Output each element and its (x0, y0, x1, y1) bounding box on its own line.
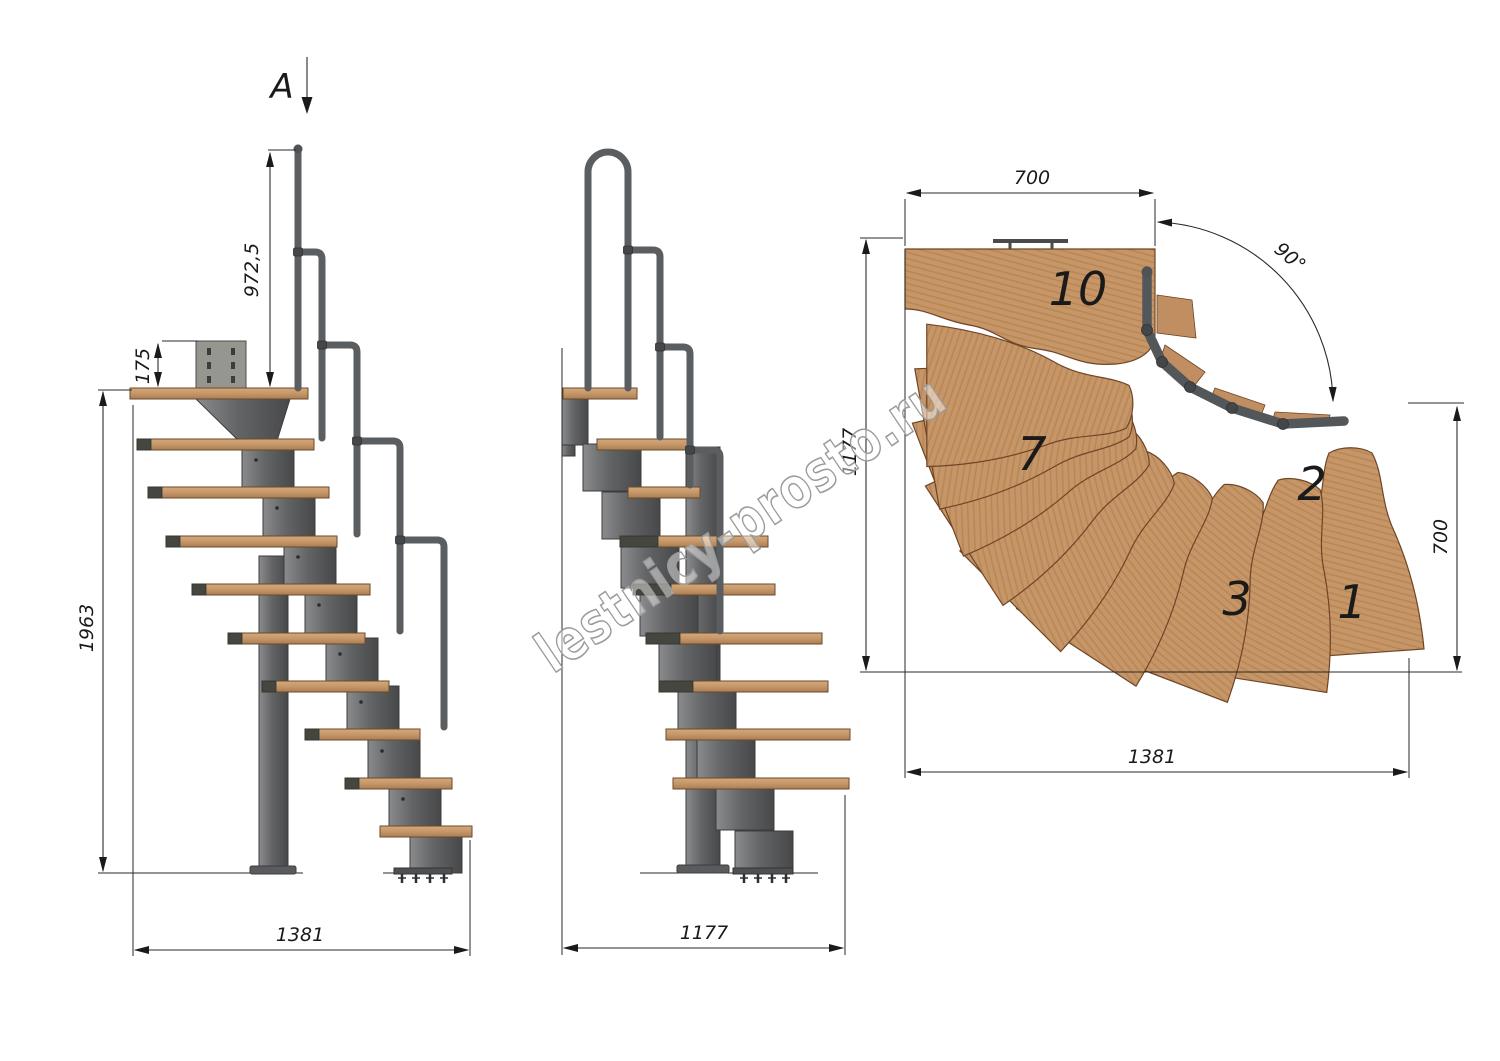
handrail-cap (1142, 267, 1153, 278)
side-tread (192, 584, 370, 595)
rail-joint (1278, 419, 1289, 430)
side-treads (130, 388, 472, 837)
base-plate (394, 868, 452, 874)
bolt-dot (380, 749, 384, 753)
side-tread (305, 729, 420, 740)
side-tread (137, 439, 314, 450)
stair-module (697, 735, 755, 782)
stair-module (326, 638, 378, 685)
tread-number-10: 10 (1049, 262, 1108, 316)
rail-joint (1142, 325, 1153, 336)
tread-number-7: 7 (1017, 427, 1046, 481)
tread-tip (1157, 295, 1196, 338)
column-base-flange (677, 865, 729, 873)
dim-label: 972,5 (241, 243, 263, 297)
tread-end-cap (148, 487, 162, 498)
rail-collar (686, 446, 695, 454)
side-tread (166, 536, 337, 547)
wall-bracket (196, 341, 246, 390)
rail-collar (353, 437, 362, 445)
section-arrow-head (302, 97, 313, 114)
tread-end-cap (166, 536, 180, 547)
stair-module (284, 541, 336, 588)
anchor-bolts (398, 874, 448, 883)
stair-module (347, 686, 399, 733)
stair-module (678, 686, 736, 733)
anchor-bolt (744, 874, 786, 883)
bracket-hole (231, 376, 235, 383)
dim-total-height: 1963 (76, 390, 132, 871)
dim-label: 1381 (1128, 746, 1176, 768)
rail-collar (396, 536, 405, 544)
rail-joint (1157, 357, 1168, 368)
staircase-drawing: A (0, 0, 1500, 1061)
side-view: A (76, 57, 472, 956)
tread-end-cap (646, 633, 680, 644)
support-column (259, 556, 288, 873)
front-tread (597, 439, 690, 450)
dim-label: 1963 (76, 604, 98, 652)
dim-label: 700 (1430, 519, 1452, 555)
side-tread (148, 487, 329, 498)
dim-handrail-height: 972,5 (241, 150, 296, 386)
wall-bracket-notch (562, 445, 575, 456)
stair-module (263, 492, 315, 539)
dim-label: 90° (1270, 238, 1310, 277)
plan-view: 10 7 2 3 1 700 90° 1177 700 (839, 167, 1464, 778)
drawing-svg: A (0, 0, 1500, 1061)
section-mark-label: A (268, 67, 293, 107)
rail-collar (624, 246, 633, 254)
dim-top-width: 700 (905, 167, 1155, 246)
handrail-cap (294, 145, 303, 154)
tread-end-cap (305, 729, 319, 740)
stair-module (735, 831, 793, 873)
tread-end-cap (192, 584, 206, 595)
tread-end-cap (137, 439, 151, 450)
dim-label: 1381 (276, 924, 324, 946)
side-tread (380, 826, 472, 837)
dim-bracket-height: 175 (132, 341, 198, 386)
bracket-hole (207, 362, 211, 369)
bolt-dot (254, 458, 258, 462)
bolt-dot (296, 555, 300, 559)
rail-collar (656, 343, 665, 351)
wall-bracket (562, 399, 588, 445)
column-base-flange (250, 866, 296, 874)
bracket-hole (207, 348, 211, 355)
front-tread (673, 778, 849, 789)
stair-module (716, 783, 774, 830)
base-plate (733, 868, 793, 874)
tread-number-2: 2 (1297, 457, 1326, 511)
stair-module (242, 444, 294, 491)
rail-joint (1185, 382, 1196, 393)
cone-adapter (196, 399, 290, 444)
dim-label: 1177 (680, 922, 728, 944)
bracket-hole (207, 376, 211, 383)
anchor-bolt (402, 874, 444, 883)
tread-end-cap (262, 681, 276, 692)
side-tread (130, 388, 308, 399)
side-tread (228, 633, 365, 644)
bolt-dot (401, 797, 405, 801)
stair-module (659, 638, 717, 685)
stair-module (305, 589, 357, 636)
stair-module (602, 492, 660, 539)
bolt-dot (275, 506, 279, 510)
bolt-dot (317, 603, 321, 607)
tread-end-cap (345, 778, 359, 789)
bracket-hole (231, 362, 235, 369)
side-tread (345, 778, 452, 789)
anchor-bolts (740, 874, 790, 883)
bracket-hole (231, 348, 235, 355)
rail-collar (294, 248, 303, 256)
stair-module (389, 783, 441, 830)
stair-module (583, 444, 641, 491)
stair-module (368, 735, 420, 782)
tread-number-3: 3 (1222, 572, 1251, 626)
tread-end-cap (228, 633, 242, 644)
front-tread (628, 487, 700, 498)
rail-collar (318, 341, 327, 349)
bolt-dot (338, 652, 342, 656)
rail-joint (1227, 403, 1238, 414)
front-tread (666, 729, 850, 740)
tread-number-1: 1 (1337, 575, 1366, 629)
bolt-dot (359, 700, 363, 704)
dim-label: 700 (1014, 167, 1050, 189)
dim-label: 175 (132, 348, 154, 384)
side-tread (262, 681, 389, 692)
tread-end-cap (659, 681, 693, 692)
